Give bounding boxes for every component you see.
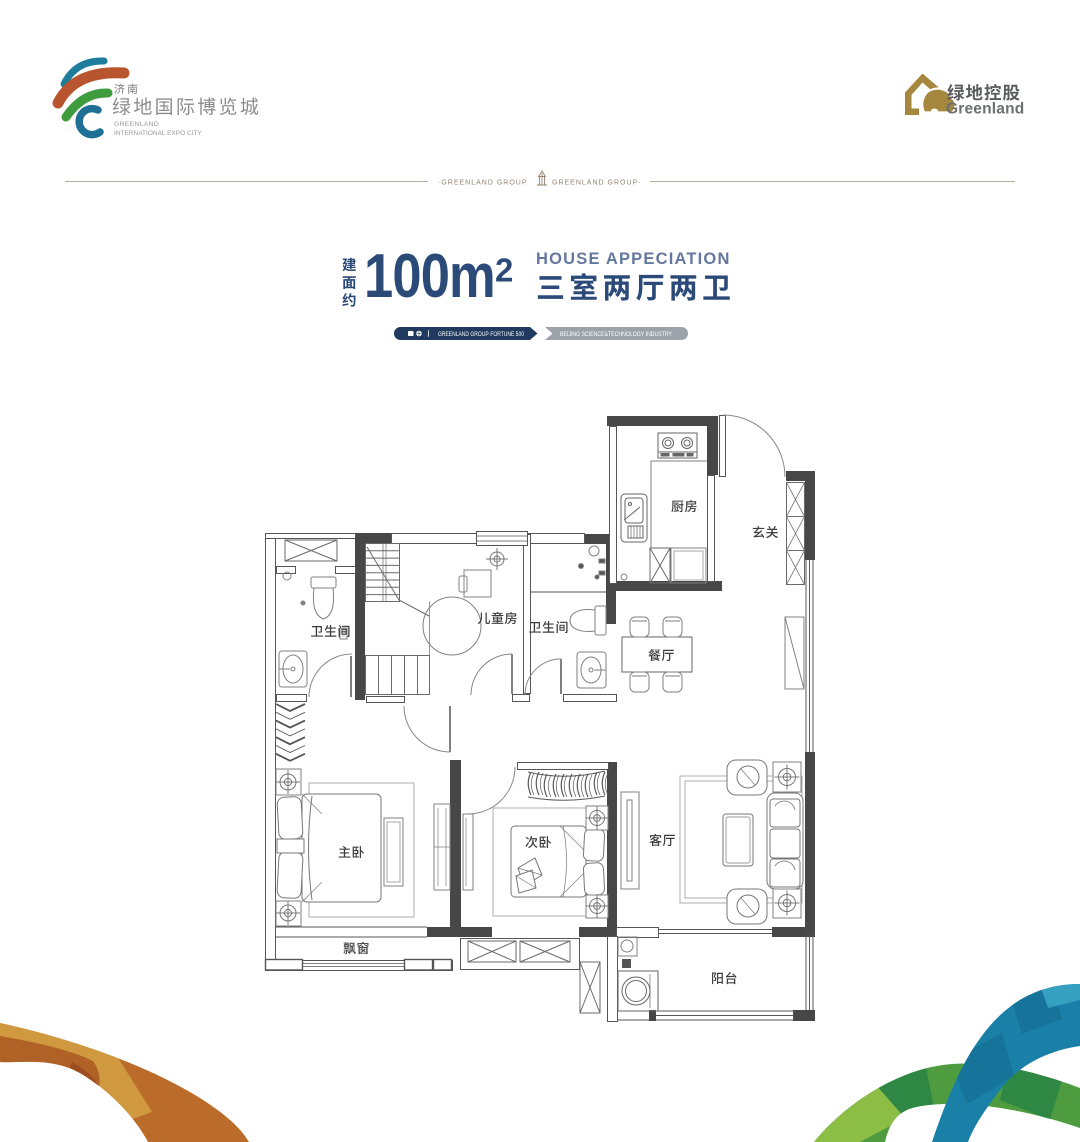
svg-text:2: 2 — [495, 252, 513, 289]
svg-text:Greenland: Greenland — [946, 101, 1024, 118]
svg-text:100m: 100m — [364, 242, 495, 311]
svg-text:GREENLAND GROUP·FORTUNE 500: GREENLAND GROUP·FORTUNE 500 — [438, 332, 525, 338]
svg-text:HOUSE APPECIATION: HOUSE APPECIATION — [536, 250, 731, 268]
svg-text:BEIJING SCIENCE&TECHNOLOGY IND: BEIJING SCIENCE&TECHNOLOGY INDUSTRY — [560, 332, 672, 338]
svg-text:·GREENLAND GROUP: ·GREENLAND GROUP — [438, 180, 528, 187]
svg-text:GREENLAND: GREENLAND — [114, 121, 159, 128]
svg-text:GREENLAND GROUP·: GREENLAND GROUP· — [552, 180, 642, 187]
svg-text:INTERNATIONAL EXPO CITY: INTERNATIONAL EXPO CITY — [114, 130, 202, 137]
